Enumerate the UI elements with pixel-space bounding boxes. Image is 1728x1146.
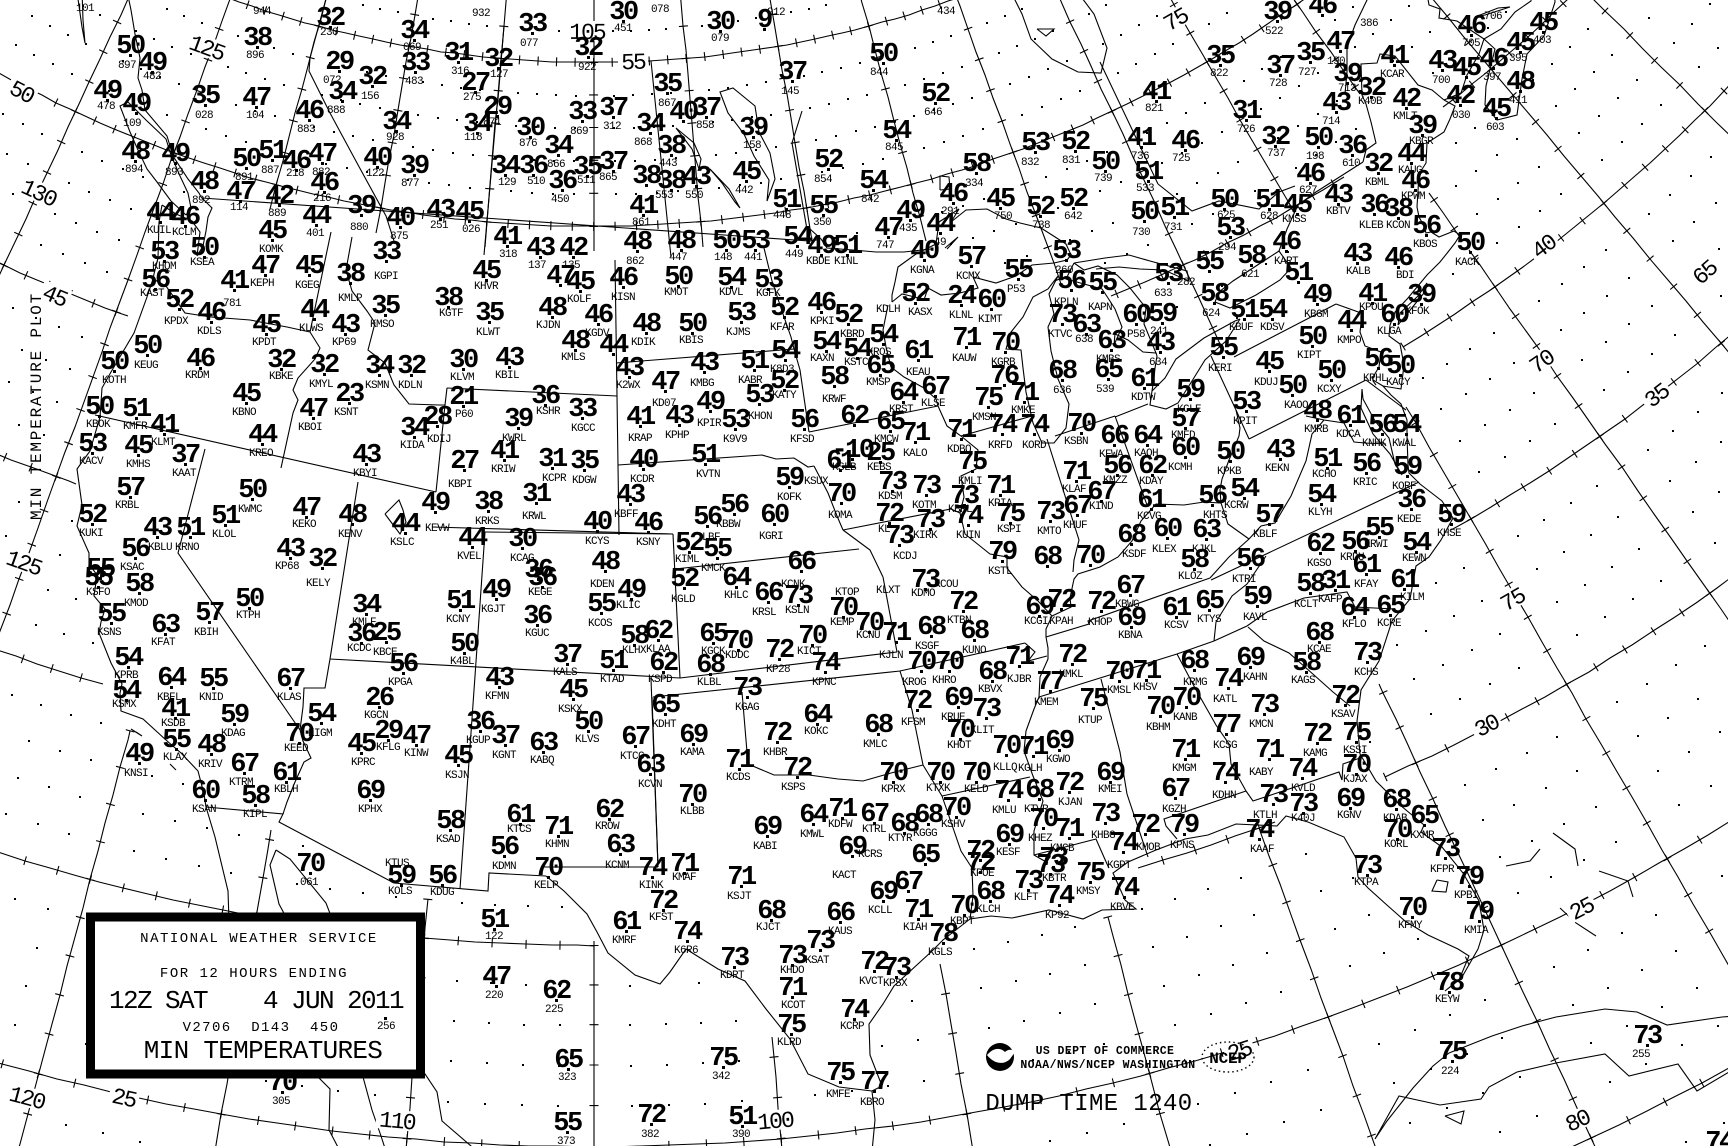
svg-text:737: 737 (1267, 148, 1285, 160)
svg-text:71: 71 (901, 419, 931, 449)
svg-text:730: 730 (1132, 227, 1150, 239)
svg-text:50: 50 (869, 40, 898, 70)
svg-text:390: 390 (732, 1129, 750, 1141)
svg-text:KLAF: KLAF (1062, 484, 1086, 496)
svg-text:KFAT: KFAT (151, 637, 176, 649)
svg-text:46: 46 (1308, 0, 1337, 22)
svg-text:KMLU: KMLU (992, 805, 1016, 817)
svg-text:KHOT: KHOT (947, 740, 972, 752)
svg-text:KPHL: KPHL (1363, 373, 1387, 385)
svg-text:50: 50 (100, 348, 129, 378)
svg-text:844: 844 (870, 67, 889, 79)
svg-text:KGEG: KGEG (295, 280, 319, 292)
svg-text:71: 71 (727, 863, 757, 893)
svg-text:705: 705 (1462, 38, 1480, 50)
svg-text:45: 45 (258, 217, 287, 247)
svg-text:55: 55 (621, 50, 647, 77)
svg-text:KEPH: KEPH (250, 278, 274, 290)
svg-text:KCDR: KCDR (630, 474, 655, 486)
svg-text:56: 56 (790, 406, 819, 436)
svg-text:KBOI: KBOI (298, 422, 322, 434)
svg-text:KOMA: KOMA (828, 510, 853, 522)
svg-text:KGUP: KGUP (466, 735, 491, 747)
svg-text:216: 216 (313, 193, 331, 205)
svg-text:397: 397 (1483, 72, 1501, 84)
svg-text:KBDE: KBDE (806, 256, 831, 268)
svg-text:KGNT: KGNT (492, 750, 517, 762)
svg-text:114: 114 (230, 202, 249, 214)
svg-text:64: 64 (157, 664, 187, 694)
svg-text:KSNT: KSNT (334, 407, 359, 419)
svg-text:KGRI: KGRI (759, 531, 783, 543)
svg-text:KRDU: KRDU (1340, 552, 1364, 564)
svg-text:KROS: KROS (867, 347, 892, 359)
svg-text:KHBR: KHBR (763, 747, 788, 759)
svg-text:636: 636 (1053, 385, 1071, 397)
svg-text:KAUS: KAUS (828, 926, 853, 938)
svg-text:58: 58 (436, 807, 465, 837)
svg-text:72: 72 (1047, 586, 1076, 616)
svg-text:KLMT: KLMT (151, 437, 176, 449)
svg-text:KBWG: KBWG (1115, 599, 1139, 611)
svg-text:KMLS: KMLS (561, 352, 586, 364)
svg-text:KBRD: KBRD (840, 329, 865, 341)
svg-text:KRST: KRST (889, 404, 914, 416)
svg-text:62: 62 (644, 617, 673, 647)
svg-text:KTVR: KTVR (1024, 804, 1049, 816)
svg-text:50: 50 (1304, 124, 1333, 154)
svg-text:K8D3: K8D3 (770, 364, 794, 376)
svg-text:KORF: KORF (1392, 481, 1416, 493)
svg-text:74: 74 (1110, 874, 1140, 904)
svg-text:KGCK: KGCK (701, 646, 726, 658)
svg-text:KACY: KACY (1386, 377, 1411, 389)
svg-text:KRWI: KRWI (1364, 539, 1388, 551)
svg-text:65: 65 (1195, 587, 1224, 617)
svg-text:127: 127 (490, 69, 508, 81)
svg-text:KGRB: KGRB (991, 357, 1016, 369)
svg-text:43: 43 (1266, 436, 1295, 466)
svg-text:316: 316 (451, 66, 469, 78)
svg-text:KBRL: KBRL (948, 504, 972, 516)
svg-text:48: 48 (623, 228, 652, 258)
svg-text:KDHT: KDHT (652, 719, 677, 731)
svg-text:KEED: KEED (284, 743, 309, 755)
svg-text:55: 55 (1088, 269, 1117, 299)
svg-text:KRAP: KRAP (628, 433, 653, 445)
svg-text:72: 72 (1303, 720, 1332, 750)
svg-text:47: 47 (308, 140, 337, 170)
svg-text:122: 122 (485, 931, 503, 943)
svg-text:46: 46 (634, 509, 663, 539)
svg-text:KBIS: KBIS (679, 335, 704, 347)
svg-text:34: 34 (365, 352, 395, 382)
svg-text:KELP: KELP (534, 880, 559, 892)
svg-text:KIAH: KIAH (903, 922, 927, 934)
svg-text:70: 70 (1146, 693, 1175, 723)
svg-text:KMKL: KMKL (1059, 669, 1083, 681)
svg-text:342: 342 (712, 1071, 730, 1083)
svg-text:KTUS: KTUS (385, 858, 410, 870)
svg-text:KCLL: KCLL (868, 905, 892, 917)
svg-text:KISN: KISN (611, 292, 635, 304)
svg-text:KNSI: KNSI (124, 768, 148, 780)
svg-text:KEGE: KEGE (528, 587, 553, 599)
svg-text:KCON: KCON (1386, 220, 1410, 232)
svg-text:KMFD: KMFD (1171, 430, 1196, 442)
svg-text:69: 69 (1045, 727, 1074, 757)
svg-text:72: 72 (637, 1101, 666, 1131)
svg-text:50: 50 (1298, 323, 1327, 353)
svg-text:43: 43 (352, 441, 381, 471)
svg-text:944: 944 (253, 6, 272, 18)
svg-text:KWMC: KWMC (238, 504, 263, 516)
svg-text:255: 255 (1632, 1049, 1650, 1061)
svg-text:KALB: KALB (1346, 266, 1371, 278)
svg-text:46: 46 (295, 97, 324, 127)
svg-text:KP69: KP69 (332, 337, 356, 349)
svg-text:442: 442 (735, 185, 753, 197)
svg-text:KCGI: KCGI (1024, 616, 1048, 628)
svg-text:KPIA: KPIA (988, 498, 1013, 510)
svg-text:883: 883 (297, 124, 315, 136)
svg-text:880: 880 (350, 222, 368, 234)
svg-text:KBTR: KBTR (1042, 873, 1067, 885)
svg-text:KEKO: KEKO (292, 519, 317, 531)
svg-text:55: 55 (553, 1109, 582, 1139)
svg-text:KLXT: KLXT (876, 585, 901, 597)
svg-text:75: 75 (826, 1059, 855, 1089)
svg-text:821: 821 (1145, 103, 1164, 115)
svg-text:71: 71 (952, 324, 982, 354)
svg-text:KLLQ: KLLQ (993, 762, 1018, 774)
svg-text:KSBN: KSBN (1064, 436, 1088, 448)
svg-text:66: 66 (754, 579, 783, 609)
svg-text:KHVR: KHVR (474, 281, 499, 293)
svg-text:726: 726 (1237, 124, 1255, 136)
svg-text:318: 318 (499, 249, 517, 261)
svg-text:45: 45 (559, 676, 588, 706)
svg-text:57: 57 (195, 599, 224, 629)
svg-text:747: 747 (876, 240, 894, 252)
svg-text:275: 275 (463, 92, 481, 104)
svg-text:KCAG: KCAG (510, 553, 534, 565)
svg-text:KDSM: KDSM (878, 491, 902, 503)
svg-text:79: 79 (1465, 898, 1494, 928)
svg-text:KRMG: KRMG (1183, 677, 1207, 689)
svg-text:550: 550 (685, 190, 703, 202)
svg-text:27: 27 (450, 447, 479, 477)
svg-text:40: 40 (583, 508, 612, 538)
svg-text:49: 49 (482, 576, 511, 606)
svg-text:73: 73 (1036, 498, 1065, 528)
svg-text:KERI: KERI (1208, 363, 1232, 375)
svg-text:KGCC: KGCC (571, 423, 596, 435)
svg-text:70: 70 (991, 329, 1020, 359)
svg-text:31: 31 (538, 445, 568, 475)
svg-text:KMBG: KMBG (690, 378, 714, 390)
svg-text:KGGG: KGGG (913, 828, 937, 840)
svg-text:KDIJ: KDIJ (427, 434, 451, 446)
svg-text:33: 33 (518, 10, 547, 40)
svg-text:KCDS: KCDS (726, 772, 751, 784)
svg-text:KLRD: KLRD (777, 1037, 802, 1049)
svg-text:KACV: KACV (79, 456, 104, 468)
svg-text:37: 37 (171, 441, 200, 471)
svg-text:KCRP: KCRP (840, 1021, 865, 1033)
svg-text:71: 71 (1171, 736, 1201, 766)
svg-text:53: 53 (721, 406, 750, 436)
svg-text:12Z SAT 4 JUN 2011: 12Z SAT 4 JUN 2011 (109, 986, 404, 1016)
svg-text:KALO: KALO (903, 448, 928, 460)
svg-text:NOAA/NWS/NCEP WASHINGTON: NOAA/NWS/NCEP WASHINGTON (1020, 1059, 1195, 1072)
svg-text:KTYS: KTYS (1197, 614, 1222, 626)
svg-text:KRWF: KRWF (822, 394, 846, 406)
svg-text:739: 739 (1094, 173, 1112, 185)
svg-text:35: 35 (1296, 39, 1325, 69)
svg-text:KPIR: KPIR (697, 418, 722, 430)
svg-text:KCXY: KCXY (1317, 384, 1342, 396)
svg-text:KMHS: KMHS (126, 459, 151, 471)
svg-text:48: 48 (1506, 68, 1535, 98)
svg-text:448: 448 (773, 210, 791, 222)
svg-text:700: 700 (1432, 75, 1450, 87)
svg-text:KCHS: KCHS (1354, 667, 1379, 679)
svg-text:KDBQ: KDBQ (947, 444, 972, 456)
svg-text:028: 028 (195, 110, 213, 122)
svg-text:KLEB: KLEB (1359, 220, 1384, 232)
svg-text:KCRW: KCRW (1224, 500, 1249, 512)
svg-text:KCVN: KCVN (638, 779, 662, 791)
svg-text:KBVE: KBVE (1110, 902, 1135, 914)
svg-text:KMSP: KMSP (866, 377, 891, 389)
svg-text:KFAY: KFAY (1354, 579, 1379, 591)
svg-text:KICT: KICT (797, 646, 822, 658)
svg-text:KDLN: KDLN (398, 380, 422, 392)
svg-text:KDAG: KDAG (221, 728, 245, 740)
svg-text:KLIT: KLIT (970, 725, 995, 737)
svg-text:46: 46 (609, 264, 638, 294)
svg-text:50: 50 (1130, 198, 1159, 228)
svg-text:45: 45 (732, 158, 761, 188)
svg-text:KPIT: KPIT (1233, 416, 1258, 428)
svg-text:KSPS: KSPS (781, 782, 806, 794)
svg-text:KHON: KHON (748, 411, 772, 423)
svg-text:610: 610 (1342, 158, 1360, 170)
svg-text:P53: P53 (1007, 284, 1025, 296)
svg-text:241: 241 (1150, 326, 1169, 338)
svg-text:KBPI: KBPI (448, 479, 472, 491)
svg-text:912: 912 (767, 7, 785, 19)
svg-text:71: 71 (1255, 736, 1285, 766)
svg-text:KBBW: KBBW (716, 519, 741, 531)
svg-text:K9V9: K9V9 (723, 434, 747, 446)
svg-text:KPGA: KPGA (388, 677, 413, 689)
svg-text:KTCC: KTCC (620, 751, 645, 763)
svg-text:KMLF: KMLF (352, 617, 376, 629)
svg-text:866: 866 (547, 159, 565, 171)
svg-text:312: 312 (603, 121, 621, 133)
svg-text:44: 44 (391, 510, 421, 540)
svg-text:KVTN: KVTN (696, 469, 720, 481)
svg-text:KFOK: KFOK (1405, 306, 1430, 318)
svg-text:41: 41 (1127, 124, 1157, 154)
svg-text:67: 67 (621, 723, 650, 753)
svg-text:539: 539 (1096, 384, 1114, 396)
svg-text:60: 60 (1122, 301, 1151, 331)
svg-text:49: 49 (421, 489, 450, 519)
svg-text:727: 727 (1298, 67, 1316, 79)
svg-text:68: 68 (1048, 357, 1077, 387)
svg-text:BDI: BDI (1396, 270, 1414, 282)
svg-text:845: 845 (885, 142, 903, 154)
svg-text:KAFP: KAFP (1318, 594, 1343, 606)
svg-text:KCLM: KCLM (172, 227, 196, 239)
svg-text:51: 51 (446, 587, 476, 617)
svg-text:642: 642 (1064, 211, 1082, 223)
svg-text:73: 73 (1091, 800, 1120, 830)
svg-text:KMKE: KMKE (1011, 405, 1036, 417)
svg-text:KSSI: KSSI (1343, 745, 1367, 757)
svg-text:KLAA: KLAA (646, 644, 671, 656)
svg-text:118: 118 (464, 132, 482, 144)
svg-text:KIDA: KIDA (400, 440, 425, 452)
svg-text:47: 47 (651, 368, 680, 398)
svg-text:48: 48 (190, 168, 219, 198)
svg-text:KWRL: KWRL (502, 433, 526, 445)
svg-text:KBIL: KBIL (495, 370, 519, 382)
svg-text:68: 68 (1117, 521, 1146, 551)
svg-text:50: 50 (238, 476, 267, 506)
svg-text:869: 869 (570, 126, 588, 138)
svg-text:KGLS: KGLS (928, 947, 953, 959)
svg-text:305: 305 (272, 1096, 290, 1108)
svg-text:KROW: KROW (595, 821, 620, 833)
svg-text:KALS: KALS (553, 667, 578, 679)
svg-text:KAOH: KAOH (1134, 448, 1158, 460)
svg-text:47: 47 (482, 963, 511, 993)
svg-text:45: 45 (1452, 54, 1481, 84)
svg-text:46: 46 (197, 299, 226, 329)
svg-text:67: 67 (230, 750, 259, 780)
svg-text:403: 403 (1533, 35, 1551, 47)
svg-text:37: 37 (491, 722, 520, 752)
svg-text:KCLT: KCLT (1294, 599, 1319, 611)
svg-text:59: 59 (1437, 501, 1466, 531)
svg-text:P60: P60 (455, 409, 473, 421)
svg-text:KUIL: KUIL (147, 225, 171, 237)
svg-text:KMSY: KMSY (1076, 886, 1101, 898)
svg-text:KMSS: KMSS (1282, 214, 1307, 226)
svg-text:KILM: KILM (1400, 592, 1424, 604)
svg-text:KCLE: KCLE (1177, 404, 1202, 416)
svg-text:443: 443 (659, 158, 677, 170)
svg-text:32: 32 (1364, 150, 1393, 180)
svg-text:48: 48 (591, 548, 620, 578)
svg-text:72: 72 (949, 588, 978, 618)
svg-text:37: 37 (778, 58, 807, 88)
svg-text:728: 728 (1269, 78, 1287, 90)
svg-text:KINL: KINL (834, 256, 858, 268)
svg-text:59: 59 (1393, 453, 1422, 483)
svg-text:KLOL: KLOL (212, 529, 236, 541)
svg-text:KMPO: KMPO (1337, 335, 1362, 347)
svg-text:156: 156 (361, 91, 379, 103)
svg-text:KSHV: KSHV (941, 819, 966, 831)
svg-text:37: 37 (599, 94, 628, 124)
svg-text:59: 59 (220, 701, 249, 731)
svg-text:29: 29 (325, 48, 354, 78)
svg-text:KSDF: KSDF (1122, 549, 1146, 561)
svg-text:KLEX: KLEX (1152, 544, 1177, 556)
svg-text:77: 77 (1212, 711, 1241, 741)
svg-text:122: 122 (366, 168, 384, 180)
svg-text:714: 714 (1322, 116, 1341, 128)
svg-text:KCAR: KCAR (1380, 69, 1405, 81)
svg-text:68: 68 (1033, 543, 1062, 573)
svg-text:49: 49 (122, 90, 151, 120)
svg-text:71: 71 (1055, 815, 1085, 845)
svg-text:KTYR: KTYR (888, 833, 913, 845)
svg-text:65: 65 (651, 691, 680, 721)
svg-text:822: 822 (1210, 68, 1228, 80)
svg-text:892: 892 (192, 195, 210, 207)
svg-text:65: 65 (911, 841, 940, 871)
svg-text:KSEA: KSEA (190, 257, 215, 269)
svg-text:KBML: KBML (1365, 177, 1389, 189)
svg-text:888: 888 (327, 105, 345, 117)
svg-text:KMTO: KMTO (1037, 526, 1062, 538)
svg-text:69: 69 (753, 813, 782, 843)
svg-text:294: 294 (1218, 242, 1237, 254)
svg-text:68: 68 (917, 613, 946, 643)
svg-text:KDEN: KDEN (590, 579, 614, 591)
svg-text:KEVW: KEVW (425, 523, 450, 535)
svg-text:KMZZ: KMZZ (1103, 475, 1128, 487)
svg-text:51: 51 (211, 502, 241, 532)
svg-text:KCNY: KCNY (446, 614, 471, 626)
svg-text:58: 58 (962, 150, 991, 180)
svg-text:889: 889 (268, 208, 286, 220)
svg-text:KD07: KD07 (652, 398, 676, 410)
svg-text:50: 50 (1216, 438, 1245, 468)
svg-text:731: 731 (1164, 222, 1183, 234)
svg-text:KP92: KP92 (1045, 910, 1069, 922)
svg-text:KMGM: KMGM (1172, 763, 1196, 775)
svg-text:KDTW: KDTW (1131, 392, 1156, 404)
svg-text:KTLH: KTLH (1253, 810, 1277, 822)
svg-text:KMSO: KMSO (370, 319, 395, 331)
svg-text:KMCK: KMCK (701, 563, 726, 575)
svg-text:KEUG: KEUG (134, 360, 158, 372)
svg-text:40: 40 (386, 204, 415, 234)
svg-text:KBCE: KBCE (373, 647, 398, 659)
svg-text:KFSD: KFSD (790, 434, 815, 446)
svg-text:KEDE: KEDE (1397, 514, 1422, 526)
svg-text:KGCN: KGCN (364, 710, 388, 722)
svg-text:KIGM: KIGM (308, 728, 332, 740)
svg-text:KEKN: KEKN (1265, 463, 1289, 475)
svg-text:FOR 12 HOURS ENDING: FOR 12 HOURS ENDING (160, 966, 348, 982)
svg-text:382: 382 (641, 1129, 659, 1141)
svg-text:KINK: KINK (639, 880, 664, 892)
svg-text:KHSE: KHSE (1437, 528, 1462, 540)
svg-text:893: 893 (165, 167, 183, 179)
svg-text:KATL: KATL (1213, 694, 1237, 706)
svg-text:35: 35 (653, 70, 682, 100)
svg-text:KACK: KACK (1455, 257, 1480, 269)
svg-text:224: 224 (1441, 1066, 1460, 1078)
